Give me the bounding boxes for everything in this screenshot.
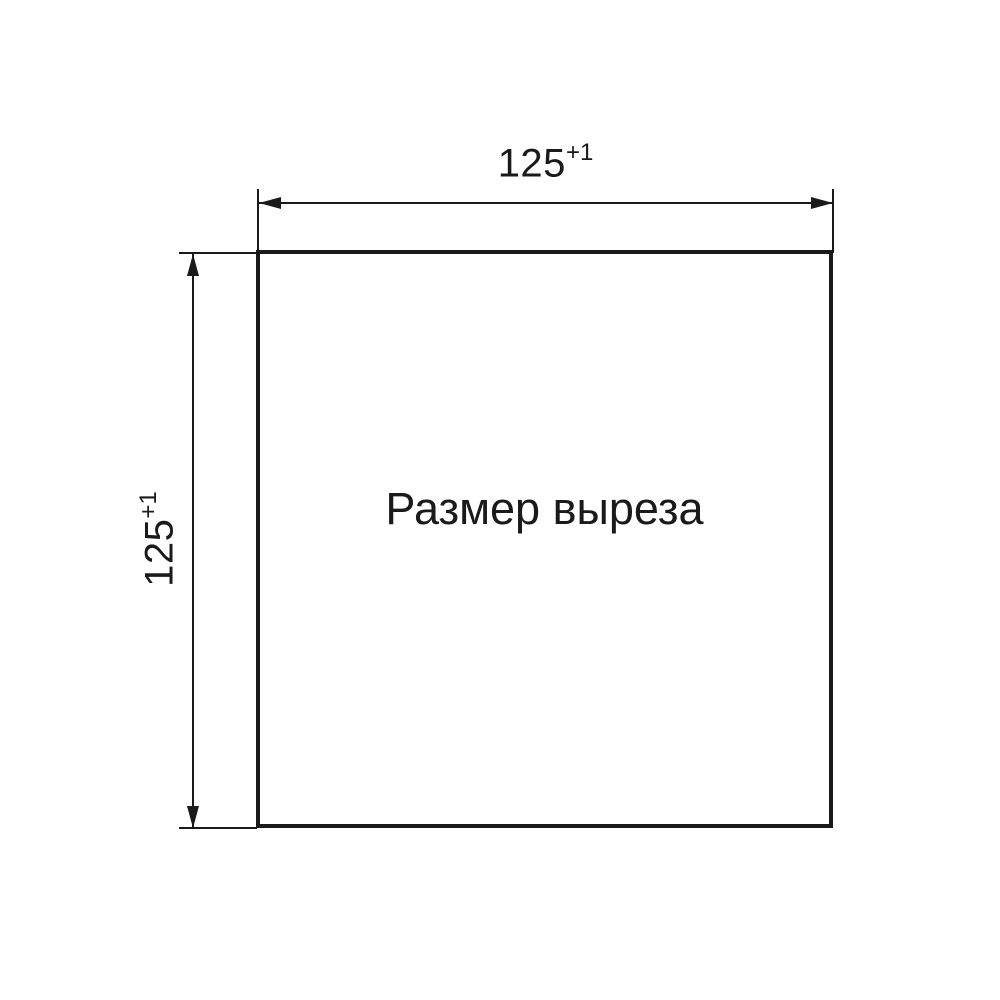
top-dimension-tolerance: +1 [566, 139, 593, 166]
cutout-size-label: Размер выреза [256, 484, 833, 534]
cutout-square-outline [256, 250, 833, 828]
top-dimension-label: 125+1 [258, 143, 833, 183]
technical-drawing-canvas: Размер выреза 125+1 125+1 [0, 0, 1000, 1000]
top-dimension-arrowhead-right-icon [811, 197, 833, 209]
left-dimension-arrowhead-down-icon [187, 806, 199, 828]
top-dimension-arrowhead-left-icon [259, 197, 281, 209]
left-dimension-line [192, 254, 194, 828]
top-dimension-line [259, 202, 833, 204]
top-dimension-value: 125 [498, 141, 566, 185]
left-dimension-arrowhead-up-icon [187, 254, 199, 276]
left-dimension-tolerance: +1 [135, 491, 162, 518]
left-dimension-value: 125 [137, 519, 181, 587]
left-dimension-label: 125+1 [139, 389, 187, 689]
